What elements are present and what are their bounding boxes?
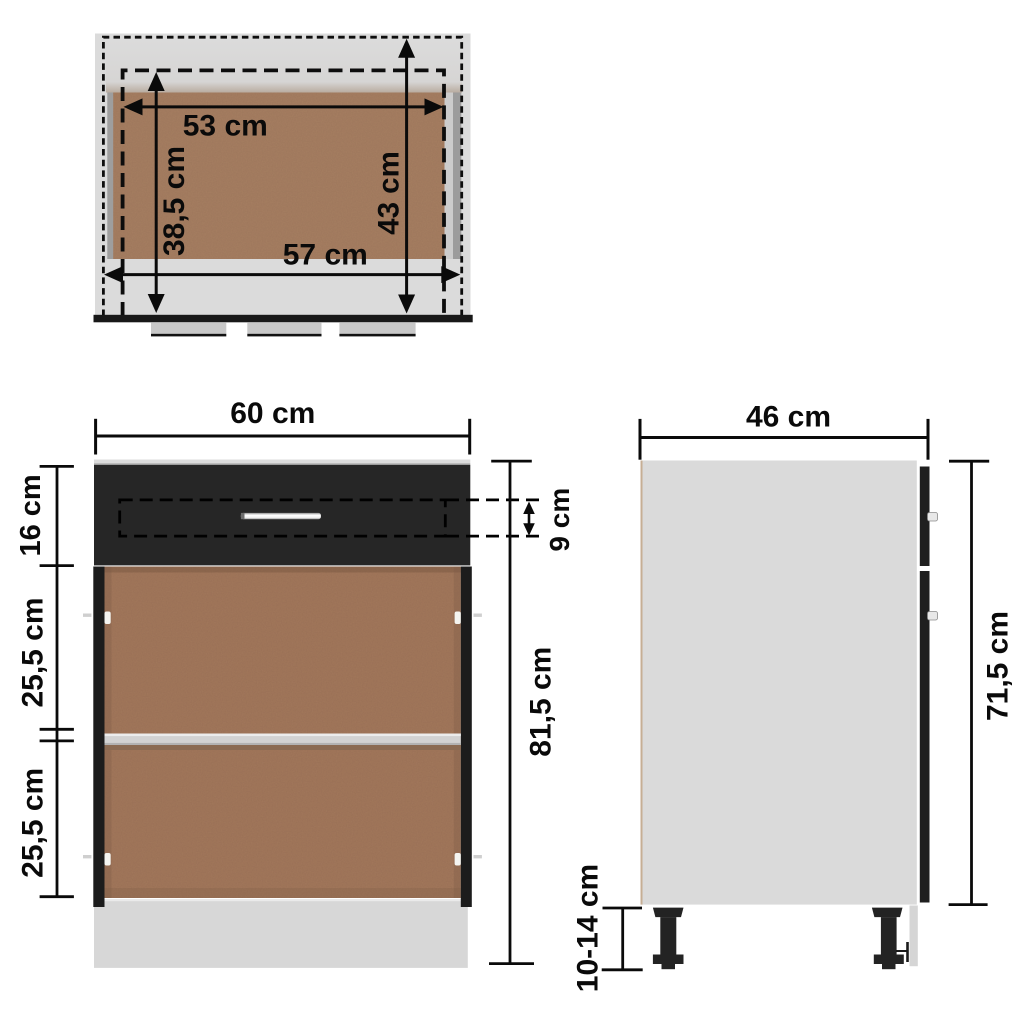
svg-text:43 cm: 43 cm <box>372 151 405 235</box>
svg-text:38,5 cm: 38,5 cm <box>158 146 191 256</box>
svg-text:81,5 cm: 81,5 cm <box>525 647 558 757</box>
svg-text:25,5 cm: 25,5 cm <box>16 597 49 707</box>
svg-text:16 cm: 16 cm <box>15 474 47 556</box>
svg-text:71,5 cm: 71,5 cm <box>982 611 1015 721</box>
svg-text:25,5 cm: 25,5 cm <box>16 768 49 878</box>
svg-text:10-14 cm: 10-14 cm <box>572 864 605 992</box>
svg-text:60 cm: 60 cm <box>230 397 315 430</box>
svg-text:46 cm: 46 cm <box>746 401 831 434</box>
svg-text:9 cm: 9 cm <box>544 488 575 552</box>
svg-text:53 cm: 53 cm <box>183 110 268 143</box>
svg-text:57 cm: 57 cm <box>283 239 368 272</box>
